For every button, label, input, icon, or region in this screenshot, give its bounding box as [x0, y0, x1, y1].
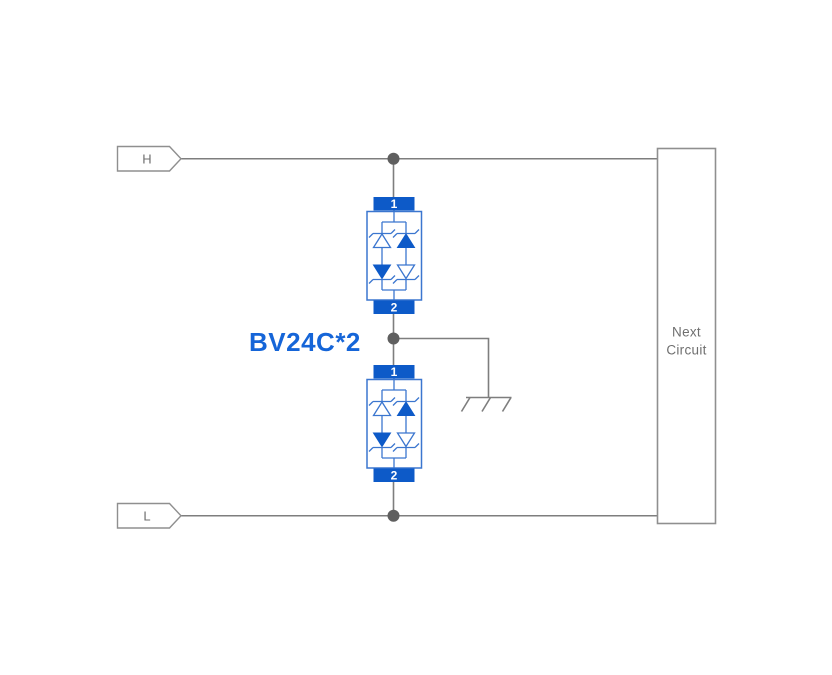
- tvs-upper-body: [367, 212, 422, 301]
- tvs-lower-terminal-2-label: 2: [391, 469, 398, 483]
- net-flag-h: H: [118, 147, 182, 172]
- ground-tick-middle: [482, 398, 491, 412]
- tvs-lower-terminal-1-label: 1: [391, 365, 398, 379]
- junction-dot-middle: [388, 333, 400, 345]
- circuit-diagram: H L Next Circuit BV24C*2 1: [0, 0, 832, 675]
- part-number-label: BV24C*2: [249, 327, 361, 357]
- net-label-l: L: [143, 509, 150, 524]
- next-circuit-label-line2: Circuit: [666, 343, 706, 358]
- net-flag-l: L: [118, 504, 182, 529]
- net-label-h: H: [142, 152, 151, 167]
- tvs-lower-body: [367, 380, 422, 469]
- ground-tick-right: [503, 398, 512, 412]
- tvs-component-lower: 1 2: [367, 365, 422, 483]
- tvs-component-upper: 1 2: [367, 197, 422, 315]
- next-circuit-block: Next Circuit: [658, 149, 716, 524]
- tvs-upper-terminal-1-label: 1: [391, 197, 398, 211]
- junction-dot-h-rail: [388, 153, 400, 165]
- tvs-upper-terminal-2-label: 2: [391, 301, 398, 315]
- chassis-ground-icon: [462, 398, 512, 412]
- ground-tick-left: [462, 398, 471, 412]
- junction-dot-l-rail: [388, 510, 400, 522]
- circuit-diagram-canvas: H L Next Circuit BV24C*2 1: [0, 0, 832, 675]
- next-circuit-label-line1: Next: [672, 325, 701, 340]
